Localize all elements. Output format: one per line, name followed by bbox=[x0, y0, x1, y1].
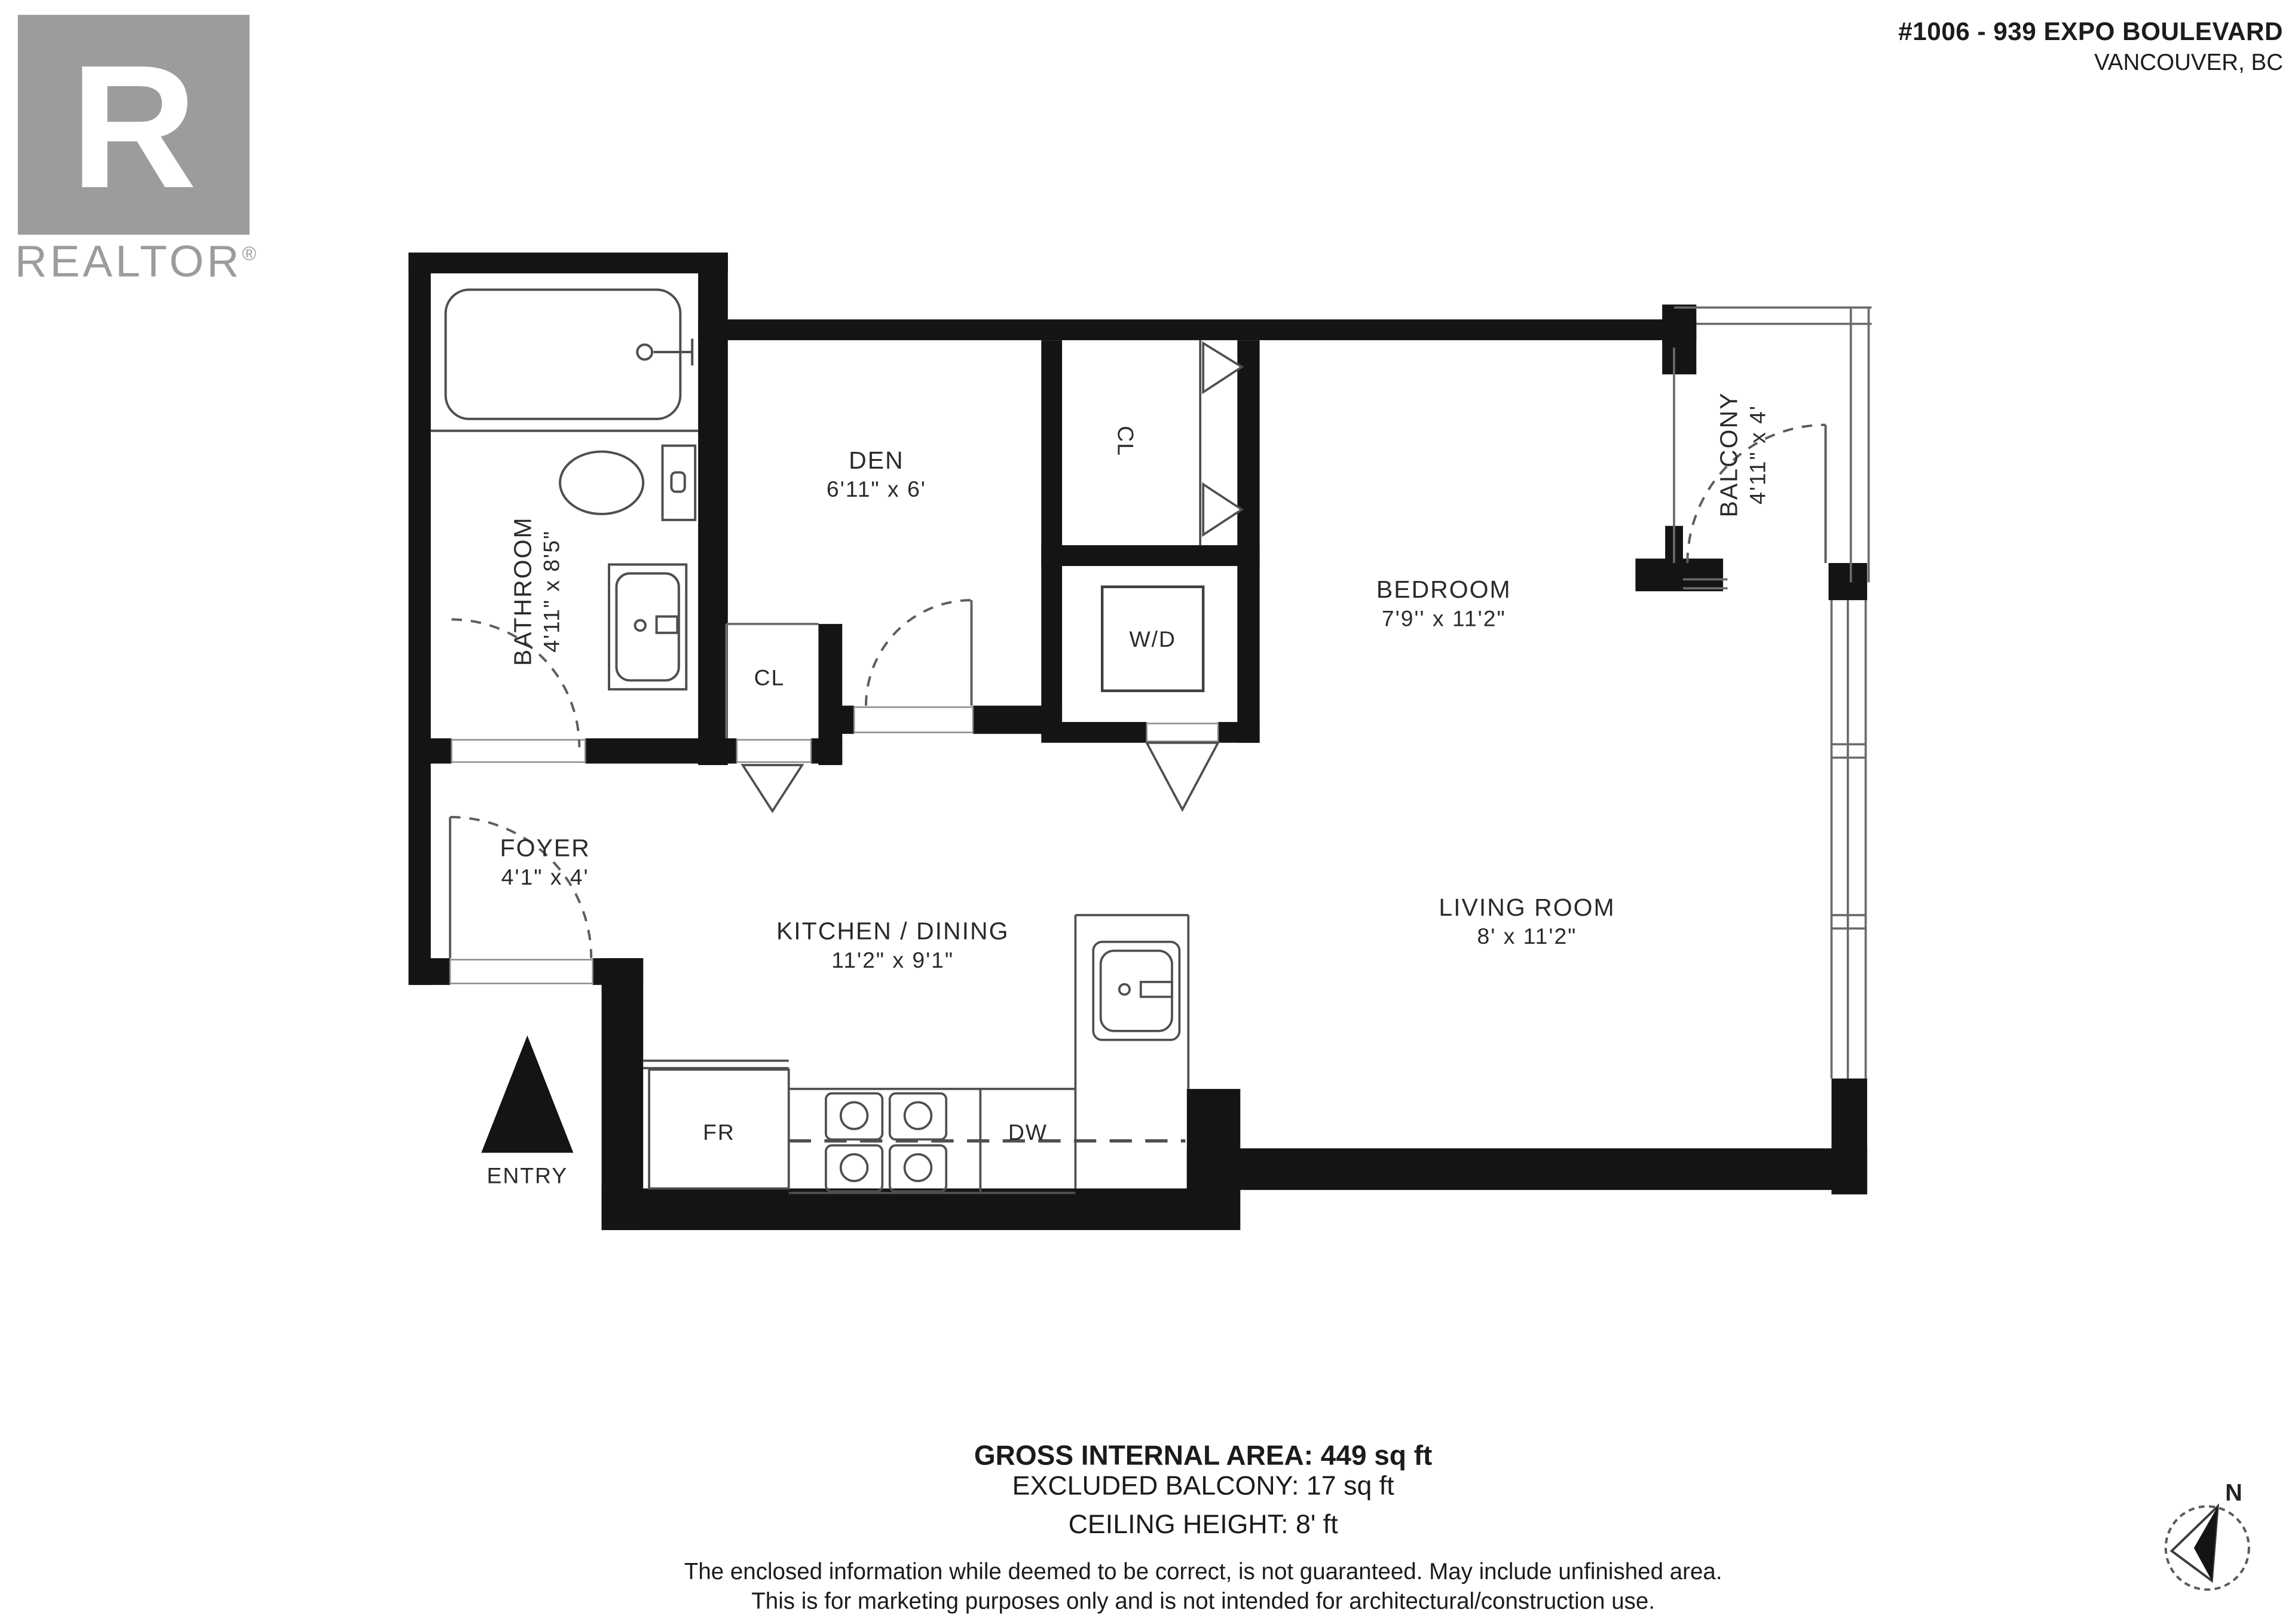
room-label-foyer: FOYER4'1" x 4' bbox=[500, 836, 590, 891]
excluded-balcony: EXCLUDED BALCONY: 17 sq ft bbox=[111, 1471, 2295, 1502]
walls bbox=[408, 253, 1867, 1230]
floorplan-page: R REALTOR® #1006 - 939 EXPO BOULEVARD VA… bbox=[0, 0, 2295, 1623]
realtor-logo-r: R bbox=[71, 40, 197, 215]
gross-internal-area: GROSS INTERNAL AREA: 449 sq ft bbox=[111, 1439, 2295, 1470]
bathtub-icon bbox=[446, 290, 681, 419]
address-line1: #1006 - 939 EXPO BOULEVARD bbox=[1898, 18, 2283, 48]
label-entry: ENTRY bbox=[486, 1164, 568, 1189]
bifold-door-icon bbox=[1203, 343, 1242, 392]
toilet-tank bbox=[662, 446, 695, 520]
disclaimer-line1: The enclosed information while deemed to… bbox=[111, 1560, 2295, 1587]
floor-plan-svg bbox=[0, 0, 2295, 1624]
room-label-kitchen-dining: KITCHEN / DINING11'2" x 9'1" bbox=[776, 919, 1009, 974]
tub-faucet-icon bbox=[637, 345, 652, 360]
kitchen-sink-icon bbox=[1093, 942, 1179, 1040]
wd-closet-door-icon bbox=[1147, 743, 1218, 810]
label-dishwasher: DW bbox=[1008, 1121, 1048, 1146]
den-door-arc bbox=[866, 600, 971, 705]
living-room-windows bbox=[1831, 600, 1865, 1078]
north-label: N bbox=[2225, 1481, 2242, 1508]
listing-address: #1006 - 939 EXPO BOULEVARD VANCOUVER, BC bbox=[1898, 18, 2283, 77]
registered-mark: ® bbox=[242, 242, 259, 264]
room-label-foyer-closet: CL bbox=[754, 666, 785, 692]
toilet-icon bbox=[560, 452, 643, 514]
bifold-door-icon bbox=[1203, 484, 1242, 535]
disclaimer-line2: This is for marketing purposes only and … bbox=[111, 1589, 2295, 1616]
address-line2: VANCOUVER, BC bbox=[1898, 51, 2283, 78]
sink-icon bbox=[609, 564, 686, 689]
room-label-closet: CL bbox=[1112, 426, 1137, 457]
realtor-wordmark: REALTOR® bbox=[15, 238, 259, 289]
ceiling-height: CEILING HEIGHT: 8' ft bbox=[111, 1509, 2295, 1540]
balcony-railing bbox=[1674, 307, 1872, 588]
room-label-bedroom: BEDROOM7'9'' x 11'2" bbox=[1376, 577, 1511, 632]
footer-summary: GROSS INTERNAL AREA: 449 sq ft EXCLUDED … bbox=[111, 1439, 2295, 1616]
room-label-den: DEN6'11" x 6' bbox=[827, 448, 926, 503]
room-label-bathroom: BATHROOM4'11" x 8'5" bbox=[510, 516, 565, 666]
room-label-balcony: BALCONY4'11" x 4' bbox=[1716, 392, 1772, 518]
realtor-logo: R bbox=[18, 15, 250, 235]
room-label-washer-dryer: W/D bbox=[1129, 628, 1176, 653]
room-label-living-room: LIVING ROOM8' x 11'2" bbox=[1439, 895, 1615, 950]
foyer-closet-door-icon bbox=[743, 765, 802, 811]
entry-arrow-icon bbox=[481, 1035, 573, 1152]
label-fridge: FR bbox=[703, 1121, 735, 1146]
